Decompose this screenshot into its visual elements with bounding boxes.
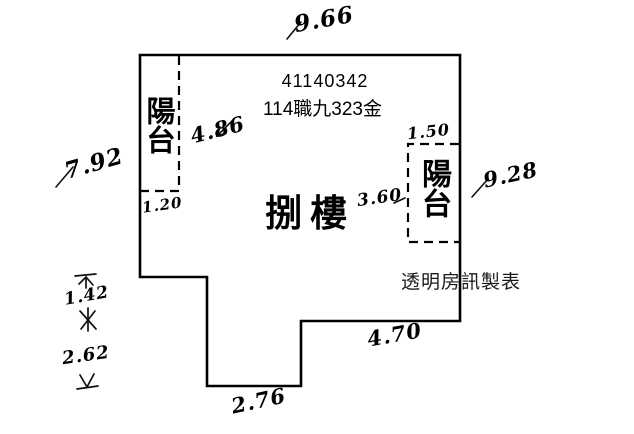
floor-name: 捌樓: [250, 183, 370, 237]
case-label: 114職九323金: [240, 94, 405, 121]
unit-number: 41140342: [245, 71, 405, 92]
right-balcony-label: 陽台: [418, 158, 448, 218]
left-balcony-label: 陽台: [143, 96, 172, 154]
credit-text: 透明房訊製表: [401, 267, 521, 294]
floor-plan-page: 41140342 114職九323金 捌樓 透明房訊製表 陽台 陽台 9.66 …: [0, 0, 634, 434]
dim-arrow-down-icon: [77, 374, 98, 389]
dim-arrows-meeting-icon: [80, 308, 96, 331]
